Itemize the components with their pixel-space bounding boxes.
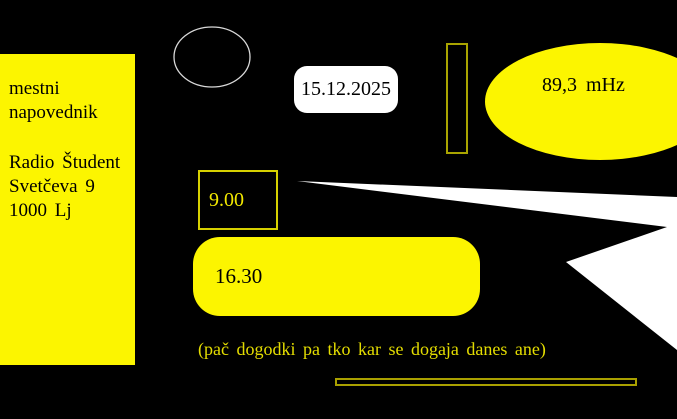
poster-canvas: mestni napovednik Radio Študent Svetčeva… [0,0,677,419]
frequency-label: 89,3 mHz [542,74,625,97]
vertical-bar-shape [446,43,468,154]
time-slot-1630-label: 16.30 [215,264,262,289]
date-label: 15.12.2025 [301,78,391,101]
footnote-text: (pač dogodki pa tko kar se dogaja danes … [198,339,546,360]
time-slot-900-box: 9.00 [198,170,278,230]
bottom-bar-shape [335,378,637,386]
ellipse-outline-shape [174,27,250,87]
date-badge: 15.12.2025 [294,66,398,113]
time-slot-900-label: 9.00 [209,189,244,212]
time-slot-1630-box: 16.30 [193,237,480,316]
